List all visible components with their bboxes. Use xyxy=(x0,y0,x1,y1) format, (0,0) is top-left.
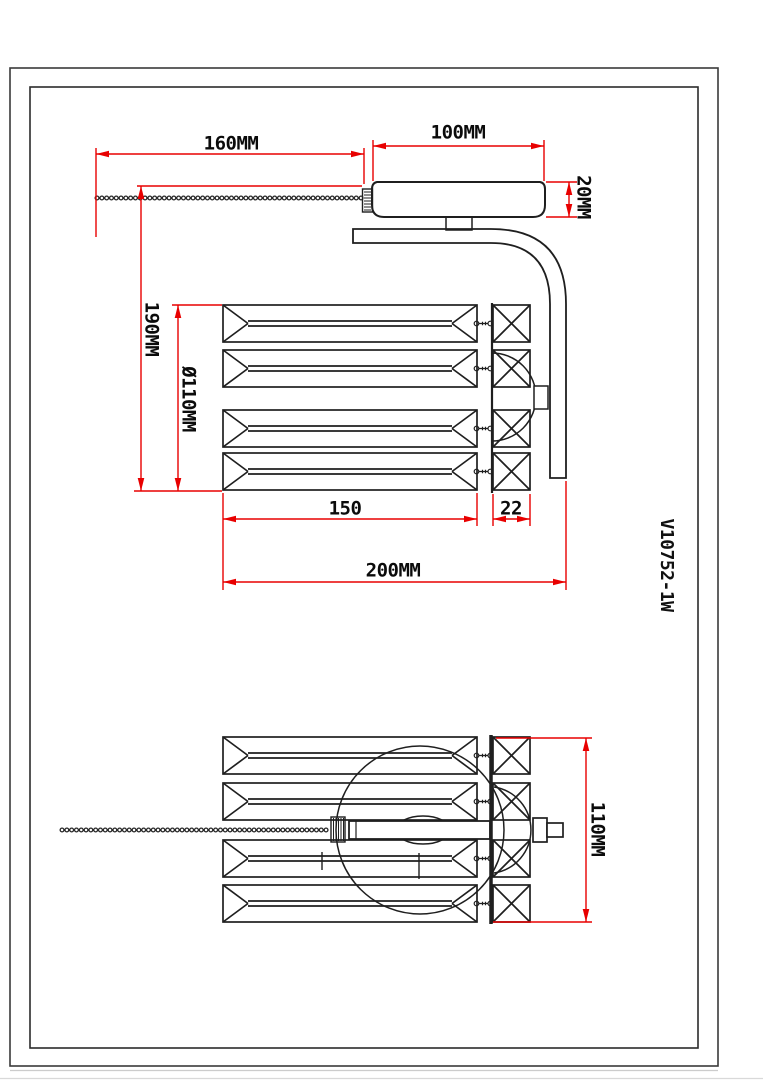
arm-connector xyxy=(534,386,548,409)
crystal-square xyxy=(493,885,530,922)
crystal-bar xyxy=(223,453,477,490)
side-view-dimensions xyxy=(96,140,577,590)
dim-label-back-plate-width: 22 xyxy=(500,500,522,519)
crystal-bar xyxy=(223,410,477,447)
dim-label-overall-height: 190MM xyxy=(142,302,161,357)
cad-drawing xyxy=(0,0,763,1080)
part-number: V10752-1W xyxy=(657,518,675,611)
dim-label-crystal-circle-diameter: Ø110MM xyxy=(179,366,198,432)
crystal-bar xyxy=(223,350,477,387)
side-view xyxy=(97,182,566,493)
bottom-view xyxy=(62,735,563,924)
canopy-stub xyxy=(446,217,472,230)
crystal-bar xyxy=(223,737,477,774)
crystal-square xyxy=(493,410,530,447)
crystal-square xyxy=(493,305,530,342)
dim-label-body-width: 110MM xyxy=(588,802,607,857)
dim-label-chain-length: 160MM xyxy=(204,135,259,154)
bar-links xyxy=(474,321,492,474)
center-rod xyxy=(349,821,490,839)
crystal-bar xyxy=(223,840,477,877)
curved-arm xyxy=(353,229,566,478)
dim-label-canopy-width: 100MM xyxy=(431,124,486,143)
crystal-square xyxy=(493,453,530,490)
stem-base xyxy=(533,818,547,842)
drawing-sheet: 160MM 100MM 20MM 190MM Ø110MM 150 22 200… xyxy=(0,0,763,1080)
crystal-square xyxy=(493,737,530,774)
dim-label-canopy-thickness: 20MM xyxy=(574,175,593,219)
dim-label-crystal-length: 150 xyxy=(329,500,362,519)
dim-label-overall-depth: 200MM xyxy=(366,562,421,581)
canopy-body xyxy=(372,182,545,217)
crystal-bar xyxy=(223,305,477,342)
stem-tip xyxy=(547,823,563,837)
crystal-bar xyxy=(223,783,477,820)
crystal-square xyxy=(493,350,530,387)
crystal-bar xyxy=(223,885,477,922)
